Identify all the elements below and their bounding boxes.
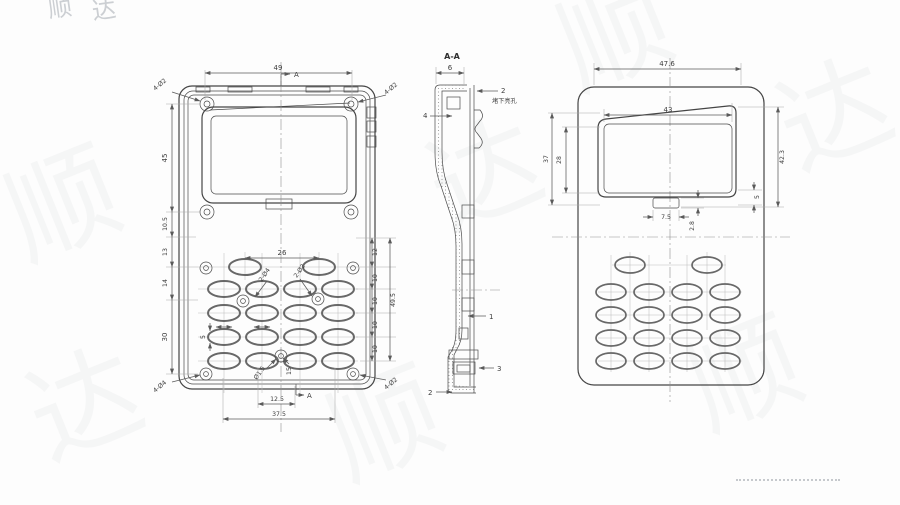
keypad-grid xyxy=(198,252,358,393)
dim-key-pitch: 26 xyxy=(278,249,287,257)
svg-text:2: 2 xyxy=(428,389,432,397)
svg-text:2: 2 xyxy=(501,87,505,95)
back-tab xyxy=(653,198,679,208)
screen-screws xyxy=(200,97,358,219)
svg-text:45: 45 xyxy=(161,154,169,163)
technical-drawing: 49 A 45 xyxy=(0,0,900,500)
section-note: 堵下亮孔 xyxy=(492,97,517,105)
svg-text:A: A xyxy=(294,71,299,79)
svg-text:12.5: 12.5 xyxy=(270,396,284,403)
svg-text:4-Ø4: 4-Ø4 xyxy=(151,379,168,395)
dim-back-small: 5 xyxy=(754,195,761,199)
dim-back-window-width: 43 xyxy=(664,106,673,114)
corner-labels: 4-Ø2 4-Ø2 4-Ø4 4-Ø2 xyxy=(151,77,399,395)
section-inner-blocks xyxy=(447,97,478,374)
svg-text:37.5: 37.5 xyxy=(272,411,286,418)
svg-text:10: 10 xyxy=(372,321,379,329)
section-title: A-A xyxy=(444,52,461,61)
svg-text:12: 12 xyxy=(372,248,379,256)
svg-text:2-Ø4: 2-Ø4 xyxy=(257,266,272,283)
svg-text:14: 14 xyxy=(162,279,169,287)
front-view: 49 A 45 xyxy=(151,62,399,432)
svg-text:5: 5 xyxy=(200,335,207,339)
svg-text:30: 30 xyxy=(161,333,169,342)
svg-text:4-Ø2: 4-Ø2 xyxy=(151,77,168,93)
dim-back-left-inner: 28 xyxy=(556,156,563,164)
back-keypad xyxy=(596,257,740,369)
back-window xyxy=(604,124,732,193)
dim-section-top: 6 xyxy=(448,64,453,72)
svg-text:10: 10 xyxy=(372,345,379,353)
svg-text:15: 15 xyxy=(286,367,293,375)
dim-back-tab-width: 7.5 xyxy=(661,214,671,221)
back-view: 47.6 43 42.3 37 28 5 xyxy=(543,58,790,402)
front-right-dims: 12 10 10 10 10 49.5 xyxy=(356,238,397,361)
svg-text:3: 3 xyxy=(497,365,501,373)
svg-text:10: 10 xyxy=(372,274,379,282)
dim-back-tab-height: 2.8 xyxy=(689,221,696,231)
screen-bezel xyxy=(202,107,356,203)
front-left-dims: 45 10.5 13 14 30 xyxy=(161,104,200,374)
drawing-canvas: 顺 达 顺 达 顺 达 顺 达 顺 xyxy=(0,0,900,500)
section-wall-hatch xyxy=(439,88,476,390)
section-view: A-A 6 xyxy=(423,52,517,397)
svg-text:4: 4 xyxy=(423,112,428,120)
svg-text:4-Ø2: 4-Ø2 xyxy=(382,376,399,392)
svg-text:1: 1 xyxy=(489,313,493,321)
svg-text:49.5: 49.5 xyxy=(390,293,397,307)
dim-back-right-height: 42.3 xyxy=(779,150,786,164)
svg-text:10.5: 10.5 xyxy=(162,217,169,231)
front-bottom-dims: 12.5 37.5 A xyxy=(223,368,335,423)
dim-front-top-width: 49 xyxy=(274,64,283,72)
screen-window xyxy=(211,116,347,194)
dim-back-left-outer: 37 xyxy=(543,155,550,163)
screen-tab xyxy=(266,199,292,209)
back-window-bezel xyxy=(598,106,736,197)
dim-back-top-width: 47.6 xyxy=(659,60,675,68)
svg-text:4-Ø2: 4-Ø2 xyxy=(382,81,399,97)
svg-text:10: 10 xyxy=(372,297,379,305)
section-marker-bottom: A xyxy=(307,392,312,400)
svg-text:13: 13 xyxy=(162,248,169,256)
section-side-bump xyxy=(474,110,483,148)
